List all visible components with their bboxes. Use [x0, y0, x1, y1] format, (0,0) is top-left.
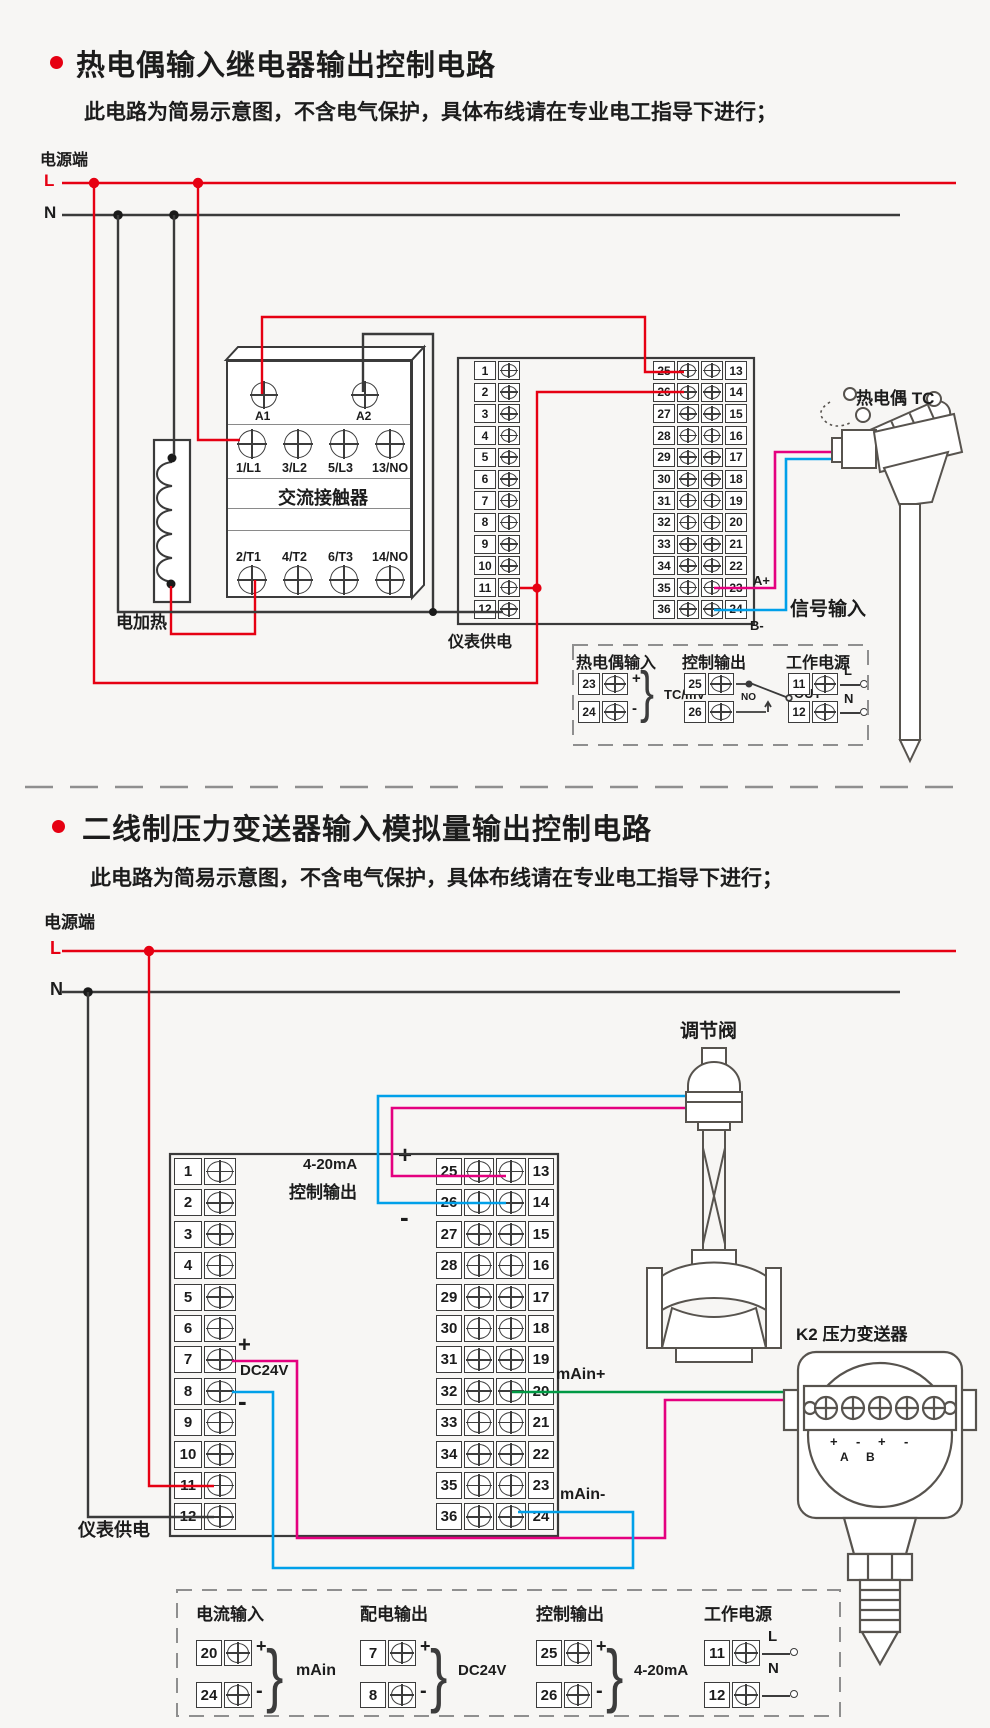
valve-minus-wire — [378, 1096, 700, 1203]
legend1-circle — [860, 680, 868, 688]
legend2-mark: + — [596, 1636, 607, 1657]
contactor-terminal-label: 6/T3 — [328, 550, 353, 564]
terminal-row: 2917 — [436, 1284, 554, 1311]
transmitter-a: A — [840, 1450, 849, 1464]
terminal-row: 2 — [474, 383, 520, 402]
contactor-screw-1l1 — [238, 430, 266, 458]
legend2-mark: - — [256, 1680, 263, 1703]
main-plus-label: mAin+ — [556, 1366, 605, 1384]
legend1-row: 26 — [684, 701, 734, 723]
live-wire-2 — [149, 951, 214, 1486]
terminal-row: 3422 — [436, 1441, 554, 1468]
neutral-label-1: N — [44, 203, 56, 223]
legend2-circle — [790, 1648, 798, 1656]
contactor-terminal-label: 5/L3 — [328, 461, 353, 475]
legend2-circle — [790, 1690, 798, 1698]
contactor-terminal-label: 2/T1 — [236, 550, 261, 564]
legend1-pwr-title: 工作电源 — [786, 649, 850, 673]
terminal-row: 4 — [474, 426, 520, 445]
legend1-row: 12 — [788, 701, 838, 723]
legend2-line — [762, 1653, 790, 1655]
contactor-screw-5l3 — [330, 430, 358, 458]
terminal-row: 7 — [474, 491, 520, 510]
legend2-row: 8 — [360, 1682, 416, 1708]
legend2-row: 24 — [196, 1682, 252, 1708]
dc24-minus: - — [238, 1386, 247, 1417]
contactor-screw-2t1 — [238, 566, 266, 594]
legend1-line — [840, 712, 860, 714]
terminal-row: 2513 — [653, 361, 747, 380]
contactor-bevel-top — [226, 347, 424, 360]
terminal-row: 3 — [174, 1221, 236, 1248]
contactor-screw-14no — [376, 566, 404, 594]
terminal-row: 10 — [174, 1441, 236, 1468]
power-terminal-label-2: 电源端 — [44, 908, 95, 933]
legend2-brace: } — [430, 1636, 447, 1717]
contactor-a1-label: A1 — [255, 409, 270, 423]
legend1-n: N — [844, 691, 853, 706]
terminal-row: 3220 — [653, 513, 747, 532]
transmitter-mark: + — [878, 1434, 886, 1449]
legend1-no: NO — [741, 692, 756, 703]
legend1-mark: - — [632, 700, 637, 717]
contactor-terminal-label: 4/T2 — [282, 550, 307, 564]
meter-supply-label-1: 仪表供电 — [448, 628, 512, 652]
legend2-pwr-title: 工作电源 — [704, 1600, 772, 1625]
live-label-2: L — [50, 938, 61, 959]
dc24-plus: + — [238, 1332, 251, 1358]
terminal-row: 1 — [174, 1158, 236, 1185]
terminal-row: 5 — [474, 448, 520, 467]
out420-minus: - — [400, 1202, 409, 1233]
dc24-label: DC24V — [240, 1362, 288, 1379]
legend2-mark: - — [420, 1680, 427, 1703]
terminal-row: 3321 — [653, 535, 747, 554]
control-valve-device — [647, 1048, 781, 1362]
section2-bullet — [52, 820, 65, 833]
terminal-row: 3018 — [653, 470, 747, 489]
contactor-a2-label: A2 — [356, 409, 371, 423]
terminal-row: 3422 — [653, 556, 747, 575]
legend2-line — [762, 1695, 790, 1697]
terminal-row: 3119 — [436, 1346, 554, 1373]
contactor-screw-13no — [376, 430, 404, 458]
a-plus-label: A+ — [753, 573, 770, 588]
legend2-ctrl-title: 控制输出 — [536, 1600, 604, 1625]
legend2-row: 7 — [360, 1640, 416, 1666]
ac-contactor: A1 A2 1/L1 3/L2 5/L3 13/NO 交流接触器 2/T1 4/… — [226, 360, 412, 598]
legend2-mark: + — [256, 1636, 267, 1657]
terminal-row: 10 — [474, 556, 520, 575]
contactor-screw-6t3 — [330, 566, 358, 594]
terminal-row: 6 — [174, 1315, 236, 1342]
terminal-row: 2614 — [653, 383, 747, 402]
contactor-screw-a2 — [352, 382, 378, 408]
terminal-row: 8 — [474, 513, 520, 532]
legend1-line — [840, 684, 860, 686]
terminal-row: 9 — [474, 535, 520, 554]
terminal-row: 3321 — [436, 1409, 554, 1436]
legend2-curin-title: 电流输入 — [196, 1600, 264, 1625]
main-minus-label: mAin- — [560, 1486, 605, 1504]
transmitter-b: B — [866, 1450, 875, 1464]
legend2-dist-title: 配电输出 — [360, 1600, 428, 1625]
section1-bullet — [50, 56, 63, 69]
neutral-label-2: N — [50, 979, 63, 1000]
out420-line2: 控制输出 — [289, 1178, 357, 1203]
terminal-row: 2816 — [436, 1252, 554, 1279]
terminal-row: 8 — [174, 1378, 236, 1405]
dc24-minus-jumper-wire — [232, 1392, 633, 1568]
thermocouple-label: 热电偶 TC — [856, 384, 934, 409]
terminal-row: 3119 — [653, 491, 747, 510]
out420-line1: 4-20mA — [303, 1156, 357, 1173]
legend2-mark: + — [420, 1636, 431, 1657]
legend1-row: 11 — [788, 673, 838, 695]
contactor-terminal-label: 3/L2 — [282, 461, 307, 475]
signal-input-label: 信号输入 — [790, 594, 866, 621]
legend2-row: 12 — [704, 1682, 760, 1708]
terminal-row: 3 — [474, 404, 520, 423]
terminal-row: 12 — [474, 600, 520, 619]
terminal-row: 2614 — [436, 1189, 554, 1216]
power-terminal-label-1: 电源端 — [40, 146, 88, 170]
contactor-terminal-label: 13/NO — [372, 461, 408, 475]
section1-subtitle: 此电路为简易示意图，不含电气保护，具体布线请在专业电工指导下进行； — [84, 96, 777, 126]
terminal-row: 2715 — [436, 1221, 554, 1248]
terminal-row: 12 — [174, 1503, 236, 1530]
terminal-row: 3523 — [653, 578, 747, 597]
terminal-row: 4 — [174, 1252, 236, 1279]
terminal-row: 7 — [174, 1346, 236, 1373]
terminal-row: 3523 — [436, 1472, 554, 1499]
pressure-transmitter-device — [784, 1352, 976, 1664]
live-label-1: L — [44, 171, 54, 191]
thermocouple-device — [821, 388, 962, 761]
section1-title: 热电偶输入继电器输出控制电路 — [76, 42, 496, 84]
contactor-name: 交流接触器 — [278, 484, 368, 510]
legend1-row: 25 — [684, 673, 734, 695]
legend2-l: L — [768, 1628, 777, 1645]
legend2-row: 25 — [536, 1640, 592, 1666]
legend2-main: mAin — [296, 1662, 336, 1680]
legend1-ctrl-title: 控制输出 — [682, 649, 746, 673]
transmitter-mark: + — [830, 1434, 838, 1449]
contactor-screw-3l2 — [284, 430, 312, 458]
terminal-row: 6 — [474, 470, 520, 489]
b-minus-label: B- — [750, 618, 764, 633]
terminal-row: 3220 — [436, 1378, 554, 1405]
legend2-row: 20 — [196, 1640, 252, 1666]
terminal-row: 5 — [174, 1284, 236, 1311]
terminal-row: 2917 — [653, 448, 747, 467]
contactor-screw-4t2 — [284, 566, 312, 594]
heater-label: 电加热 — [116, 608, 167, 633]
legend1-row: 24 — [578, 701, 628, 723]
legend2-brace: } — [606, 1636, 623, 1717]
section2-title: 二线制压力变送器输入模拟量输出控制电路 — [82, 806, 652, 848]
legend1-l: L — [844, 663, 852, 678]
terminal-row: 3018 — [436, 1315, 554, 1342]
terminal-row: 9 — [174, 1409, 236, 1436]
legend2-row: 11 — [704, 1640, 760, 1666]
transmitter-mark: - — [856, 1434, 860, 1449]
contactor-screw-a1 — [251, 382, 277, 408]
terminal-row: 2816 — [653, 426, 747, 445]
terminal-row: 2 — [174, 1189, 236, 1216]
terminal-row: 11 — [174, 1472, 236, 1499]
transmitter-mark: - — [904, 1434, 908, 1449]
transmitter-label: K2 压力变送器 — [796, 1320, 907, 1345]
legend2-420: 4-20mA — [634, 1662, 688, 1679]
legend1-brace: } — [640, 660, 654, 725]
legend2-mark: - — [596, 1680, 603, 1703]
contactor-bevel-side — [412, 347, 424, 598]
legend1-row: 23 — [578, 673, 628, 695]
legend2-row: 26 — [536, 1682, 592, 1708]
legend2-dc24: DC24V — [458, 1662, 506, 1679]
meter-supply-label-2: 仪表供电 — [78, 1516, 150, 1542]
valve-label: 调节阀 — [680, 1016, 737, 1043]
terminal-row: 1 — [474, 361, 520, 380]
legend2-brace: } — [266, 1636, 283, 1717]
legend1-circle — [860, 708, 868, 716]
terminal-row: 11 — [474, 578, 520, 597]
terminal-row: 3624 — [436, 1503, 554, 1530]
section2-subtitle: 此电路为简易示意图，不含电气保护，具体布线请在专业电工指导下进行； — [90, 862, 783, 892]
contactor-terminal-label: 14/NO — [372, 550, 408, 564]
heater-element — [154, 440, 190, 602]
legend2-n: N — [768, 1660, 779, 1677]
wiring-diagram-page: 热电偶输入继电器输出控制电路 此电路为简易示意图，不含电气保护，具体布线请在专业… — [0, 0, 990, 1728]
terminal-row: 3624 — [653, 600, 747, 619]
out420-plus: + — [398, 1142, 412, 1170]
terminal-row: 2715 — [653, 404, 747, 423]
contactor-terminal-label: 1/L1 — [236, 461, 261, 475]
terminal-row: 2513 — [436, 1158, 554, 1185]
